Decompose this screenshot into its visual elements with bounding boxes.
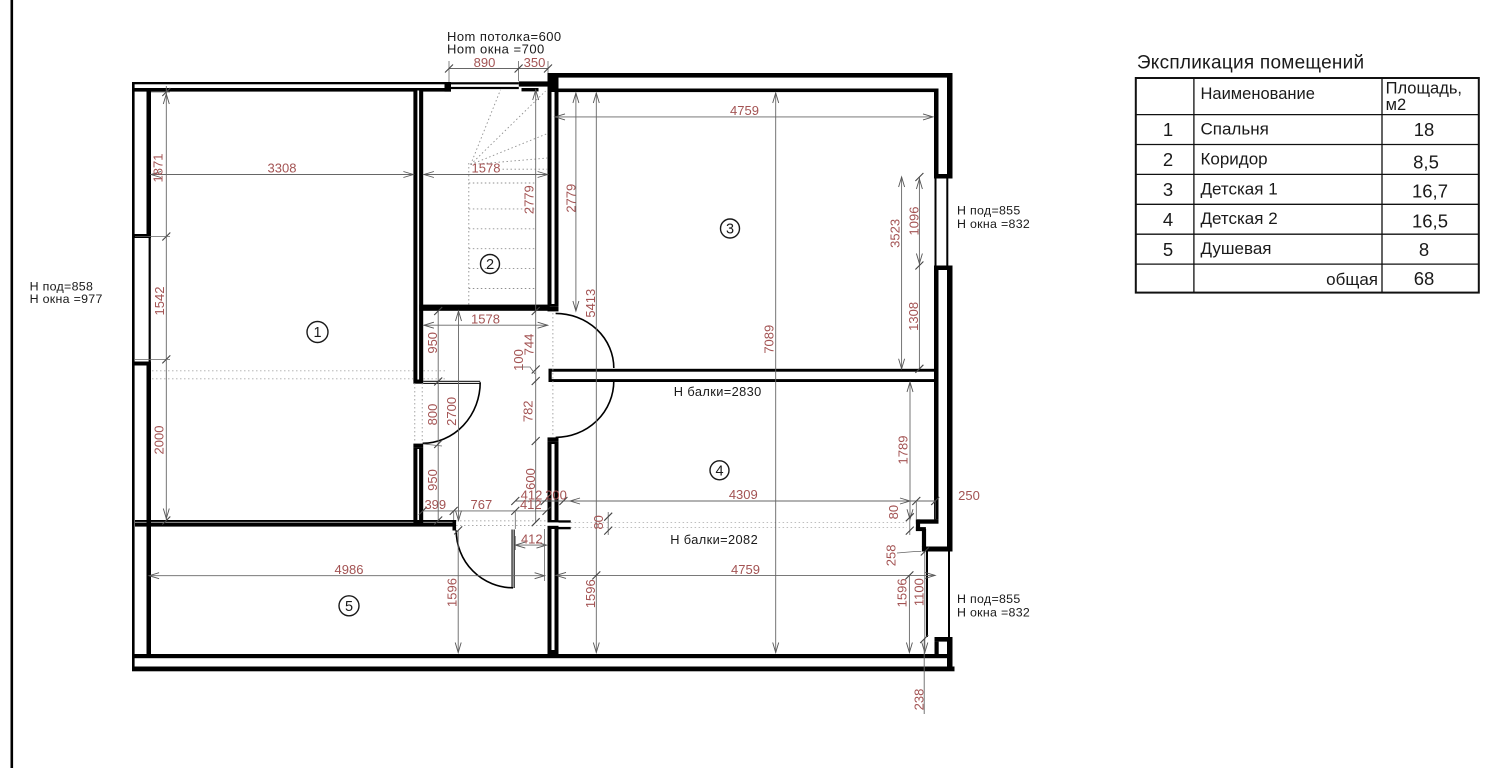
svg-text:H под=855: H под=855	[957, 592, 1021, 606]
svg-text:4759: 4759	[730, 103, 759, 118]
svg-text:1789: 1789	[896, 436, 911, 465]
svg-text:4: 4	[715, 463, 723, 479]
svg-text:238: 238	[911, 689, 926, 711]
svg-text:2: 2	[1163, 149, 1173, 170]
svg-text:16,5: 16,5	[1412, 211, 1448, 232]
svg-text:4: 4	[1163, 209, 1173, 230]
svg-text:1578: 1578	[471, 311, 500, 326]
svg-text:4309: 4309	[729, 487, 758, 502]
svg-text:5: 5	[1163, 239, 1173, 260]
svg-text:1596: 1596	[895, 578, 910, 607]
svg-text:2700: 2700	[444, 397, 459, 426]
svg-text:Площадь,: Площадь,	[1386, 80, 1462, 98]
svg-text:68: 68	[1414, 268, 1435, 289]
svg-text:Спальня: Спальня	[1201, 120, 1269, 139]
svg-text:1308: 1308	[906, 302, 921, 331]
svg-text:1596: 1596	[445, 578, 460, 607]
svg-text:8,5: 8,5	[1413, 152, 1439, 173]
svg-text:18: 18	[1414, 119, 1435, 140]
svg-text:950: 950	[425, 332, 440, 354]
svg-text:1542: 1542	[152, 287, 167, 316]
svg-text:H окна =977: H окна =977	[30, 292, 103, 306]
svg-text:16,7: 16,7	[1412, 181, 1448, 202]
svg-text:H окна =832: H окна =832	[957, 605, 1030, 619]
svg-text:399: 399	[424, 497, 446, 512]
svg-text:Н окна =832: Н окна =832	[957, 217, 1030, 231]
svg-text:Коридор: Коридор	[1201, 149, 1268, 168]
svg-text:общая: общая	[1326, 270, 1378, 289]
svg-text:412: 412	[520, 497, 542, 512]
svg-text:2000: 2000	[152, 426, 167, 455]
svg-text:Экспликация помещений: Экспликация помещений	[1137, 53, 1364, 74]
svg-text:1871: 1871	[151, 154, 166, 183]
svg-text:H под=855: H под=855	[957, 203, 1021, 217]
svg-text:Наименование: Наименование	[1201, 85, 1315, 103]
svg-text:Душевая: Душевая	[1201, 239, 1272, 258]
svg-text:1100: 1100	[911, 578, 926, 606]
svg-text:80: 80	[591, 515, 606, 529]
svg-text:350: 350	[524, 55, 546, 70]
svg-text:1: 1	[1163, 119, 1173, 140]
svg-text:1: 1	[313, 325, 321, 341]
svg-text:258: 258	[884, 545, 899, 567]
svg-text:600: 600	[523, 468, 538, 490]
svg-text:767: 767	[471, 497, 493, 512]
svg-text:80: 80	[886, 505, 901, 519]
svg-text:5: 5	[345, 599, 353, 615]
svg-text:1096: 1096	[906, 207, 921, 236]
svg-text:4759: 4759	[731, 562, 760, 577]
svg-text:412: 412	[521, 531, 543, 546]
svg-text:Детская 1: Детская 1	[1201, 179, 1278, 198]
svg-text:2779: 2779	[522, 185, 537, 214]
svg-text:м2: м2	[1386, 96, 1407, 114]
svg-text:200: 200	[545, 488, 567, 503]
svg-text:5413: 5413	[583, 289, 598, 318]
svg-text:100: 100	[511, 349, 526, 371]
svg-text:8: 8	[1419, 239, 1429, 260]
svg-text:H балки=2082: H балки=2082	[670, 532, 758, 547]
svg-text:2: 2	[486, 257, 494, 273]
svg-text:800: 800	[425, 404, 440, 426]
svg-text:4986: 4986	[335, 562, 364, 577]
svg-text:782: 782	[520, 400, 535, 422]
svg-text:Hom окна =700: Hom окна =700	[447, 42, 545, 57]
svg-text:3308: 3308	[268, 161, 297, 176]
svg-text:7089: 7089	[762, 325, 777, 354]
svg-text:950: 950	[425, 469, 440, 491]
svg-text:3: 3	[1163, 179, 1173, 200]
svg-text:250: 250	[958, 488, 980, 503]
svg-text:3523: 3523	[888, 219, 903, 248]
svg-text:2779: 2779	[563, 184, 578, 213]
svg-text:1596: 1596	[583, 579, 598, 608]
svg-text:890: 890	[474, 55, 496, 70]
svg-text:H балки=2830: H балки=2830	[674, 384, 762, 399]
svg-text:Детская 2: Детская 2	[1201, 209, 1278, 228]
svg-text:3: 3	[726, 222, 734, 238]
svg-text:1578: 1578	[472, 161, 501, 176]
